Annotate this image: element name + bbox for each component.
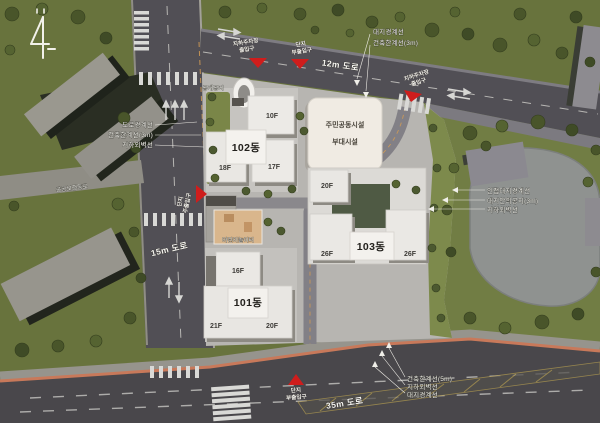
b101-21f: 21F xyxy=(210,323,223,330)
b103-26f-left: 26F xyxy=(321,251,334,258)
community-building xyxy=(305,98,382,173)
b101-name: 101동 xyxy=(234,297,262,309)
b102-10f: 10F xyxy=(266,113,279,120)
b102-18f: 18F xyxy=(219,165,232,172)
svg-text:대지경계선: 대지경계선 xyxy=(373,27,404,36)
community-label-1: 주민공동시설 xyxy=(326,120,365,129)
b102-17f: 17F xyxy=(268,164,281,171)
svg-text:건축한계선(3m): 건축한계선(3m) xyxy=(373,38,418,47)
b101-16f: 16F xyxy=(232,268,245,275)
playground-equipment xyxy=(224,214,234,222)
b103-26f-right: 26F xyxy=(404,251,417,258)
svg-text:대지경계선: 대지경계선 xyxy=(407,390,438,399)
svg-text:지하외벽선: 지하외벽선 xyxy=(122,140,153,149)
b103-name: 103동 xyxy=(357,241,385,253)
svg-text:건축한계선(3m): 건축한계선(3m) xyxy=(108,130,153,139)
existing-building-se xyxy=(585,198,600,246)
svg-text:지하외벽선: 지하외벽선 xyxy=(487,205,518,214)
svg-text:건축한계선(5m): 건축한계선(5m) xyxy=(407,374,452,383)
playground-label: 어린이놀이터 xyxy=(222,236,254,244)
svg-text:지하외벽선: 지하외벽선 xyxy=(407,382,438,391)
svg-text:도로경계선: 도로경계선 xyxy=(122,120,153,129)
b102-name: 102동 xyxy=(232,142,260,154)
playground-equipment-2 xyxy=(244,222,252,232)
b103-20f: 20F xyxy=(321,183,334,190)
open-space-label: 공개공지 xyxy=(202,84,223,92)
community-label-2: 부대시설 xyxy=(332,137,358,146)
svg-text:대지안의공지(3m): 대지안의공지(3m) xyxy=(487,196,538,205)
site-plan-canvas: 주민공동시설 부대시설 공개공지 10F 102동 18F 17F 어린이놀이터… xyxy=(0,0,600,423)
b101-20f: 20F xyxy=(266,323,279,330)
svg-text:인접대지경계선: 인접대지경계선 xyxy=(487,186,530,195)
site-plan-page: 주민공동시설 부대시설 공개공지 10F 102동 18F 17F 어린이놀이터… xyxy=(0,0,600,423)
